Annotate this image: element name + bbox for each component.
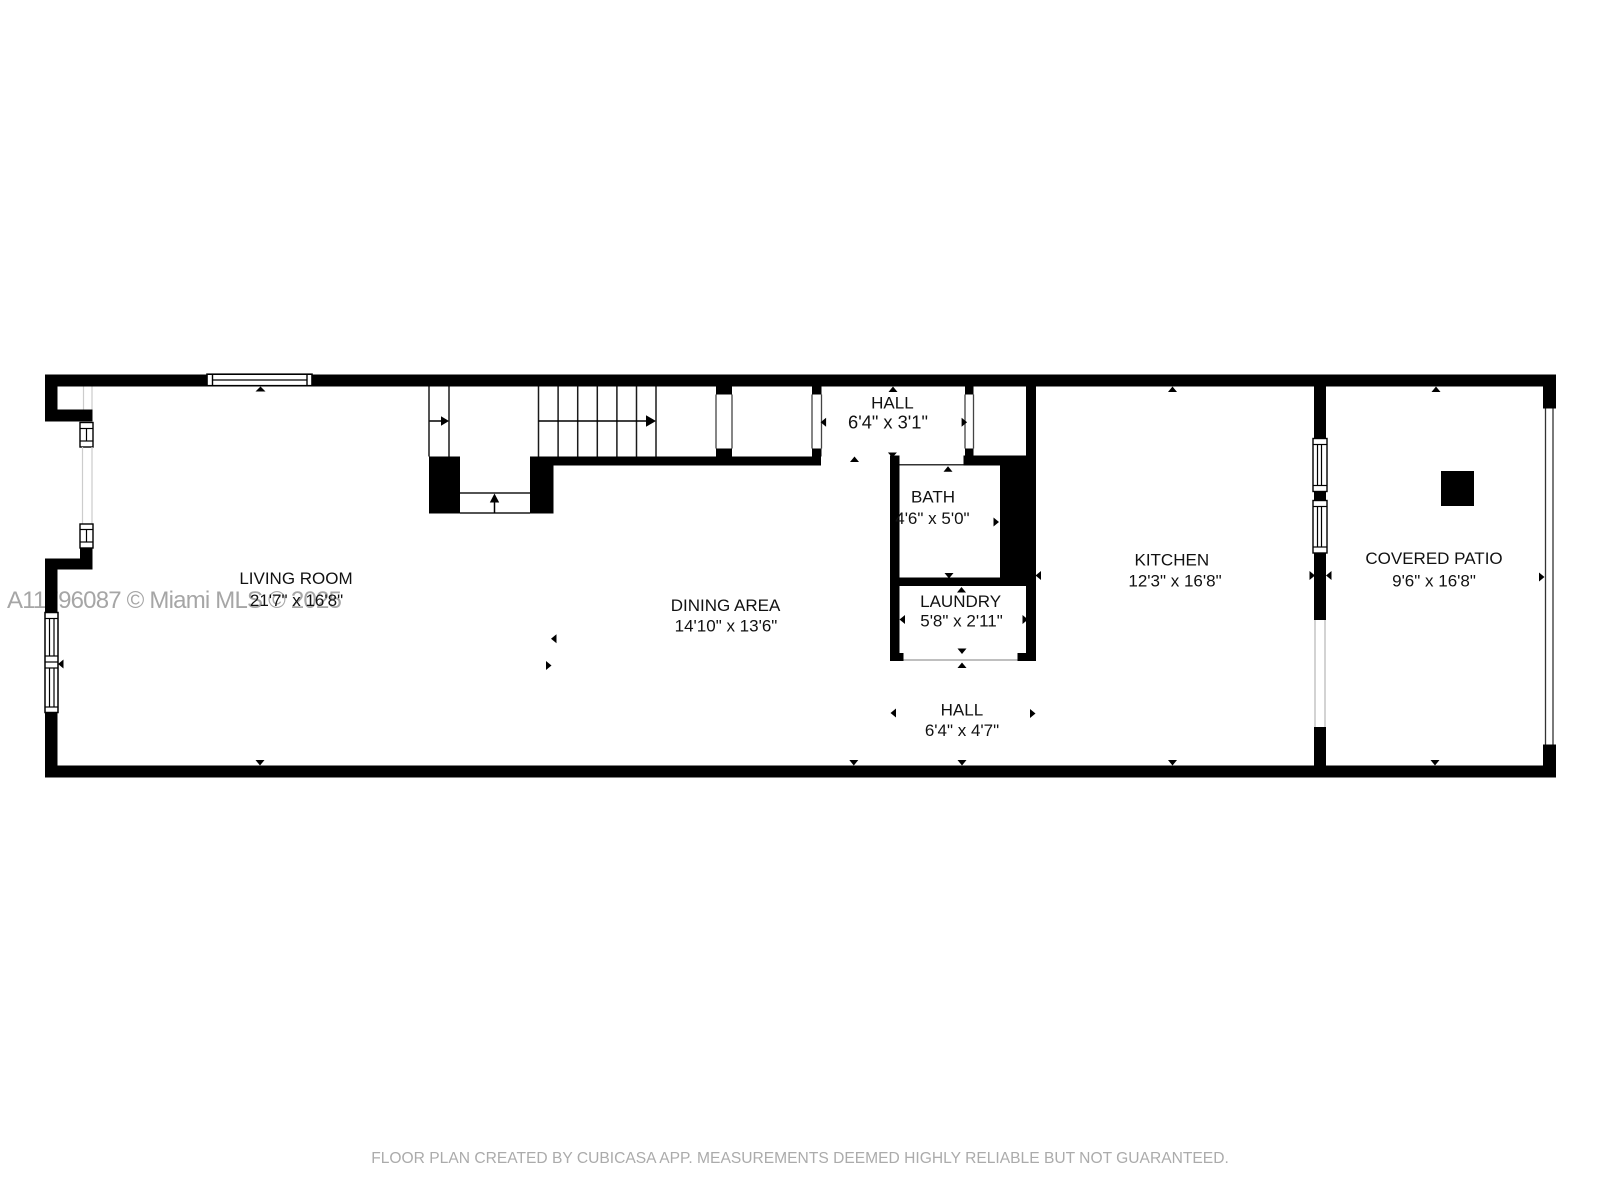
svg-text:5'8" x 2'11": 5'8" x 2'11" bbox=[920, 612, 1003, 631]
svg-text:LAUNDRY: LAUNDRY bbox=[920, 592, 1001, 611]
svg-text:COVERED PATIO: COVERED PATIO bbox=[1365, 549, 1502, 568]
svg-text:DINING AREA: DINING AREA bbox=[671, 596, 781, 615]
svg-text:21'7" x 16'8": 21'7" x 16'8" bbox=[250, 591, 343, 610]
svg-text:6'4" x 4'7": 6'4" x 4'7" bbox=[925, 721, 999, 740]
svg-text:BATH: BATH bbox=[911, 487, 955, 506]
svg-text:LIVING ROOM: LIVING ROOM bbox=[239, 569, 352, 588]
svg-text:6'4" x 3'1": 6'4" x 3'1" bbox=[848, 412, 928, 433]
svg-text:9'6" x 16'8": 9'6" x 16'8" bbox=[1392, 572, 1476, 591]
svg-text:4'6" x 5'0": 4'6" x 5'0" bbox=[895, 509, 969, 528]
svg-text:HALL: HALL bbox=[941, 700, 984, 719]
svg-text:HALL: HALL bbox=[871, 393, 914, 412]
svg-text:14'10" x 13'6": 14'10" x 13'6" bbox=[675, 617, 778, 636]
svg-text:12'3" x 16'8": 12'3" x 16'8" bbox=[1128, 572, 1221, 591]
svg-text:FLOOR PLAN CREATED BY CUBICASA: FLOOR PLAN CREATED BY CUBICASA APP. MEAS… bbox=[371, 1150, 1229, 1167]
svg-text:KITCHEN: KITCHEN bbox=[1134, 550, 1209, 569]
